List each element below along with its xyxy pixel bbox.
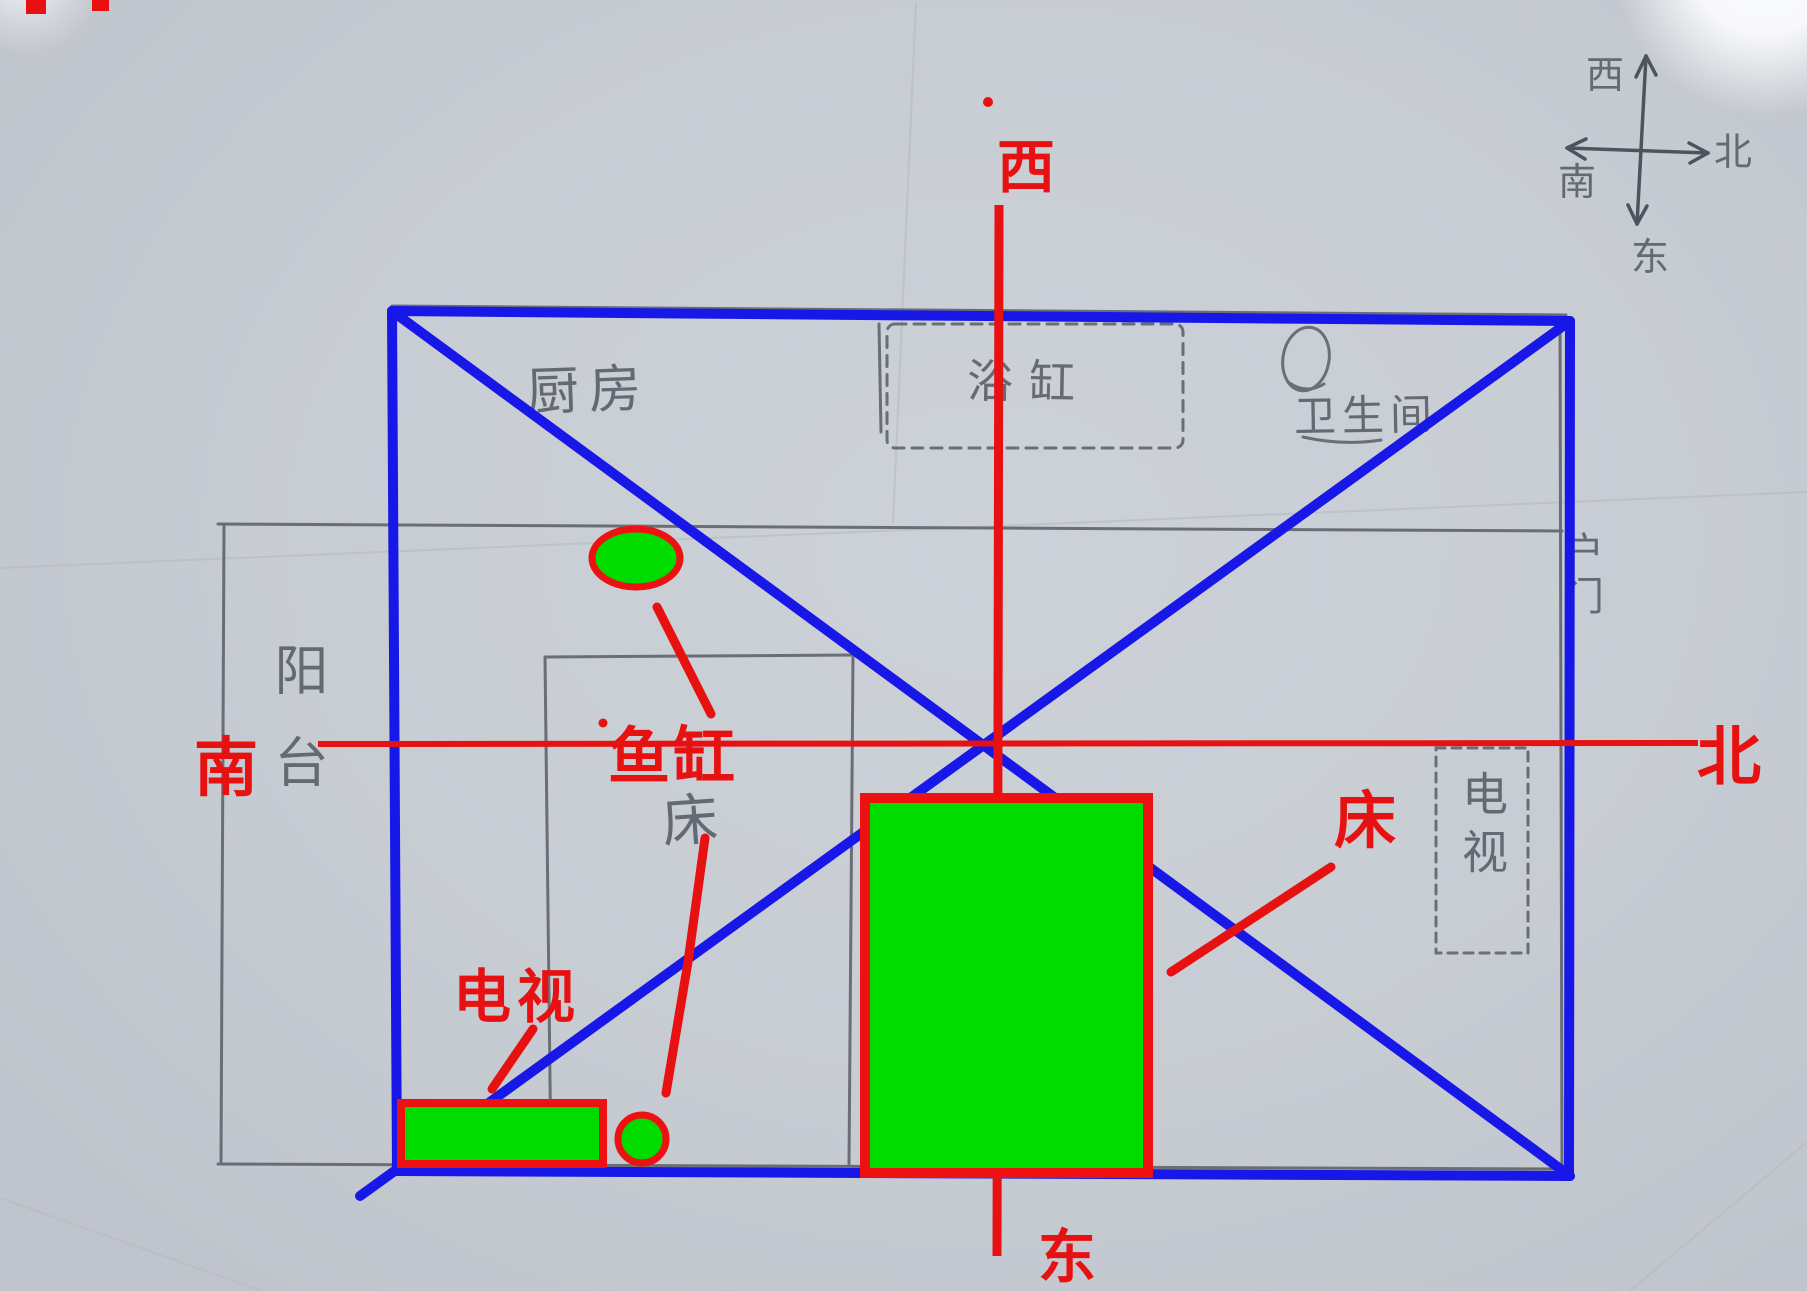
bed-red-label: 床 — [1334, 791, 1396, 853]
compass-arrow-up — [1636, 56, 1656, 77]
blue-bottom-edge — [397, 1171, 1570, 1176]
pencil-bottom-wall — [218, 1164, 1565, 1169]
green-furniture — [401, 529, 1148, 1173]
axis-east-label: 东 — [1038, 1229, 1096, 1287]
red-dot-top — [983, 97, 993, 107]
blue-top-edge — [392, 311, 1570, 321]
pencil-bedroom-top — [545, 655, 853, 657]
crease-line — [0, 492, 1807, 568]
blue-left-edge — [392, 311, 397, 1171]
fish-tank-pointer — [657, 607, 711, 714]
tv-pointer — [492, 1029, 533, 1089]
tv-shape — [401, 1103, 603, 1164]
entrance-door-label: 户门 — [1560, 531, 1600, 619]
compass-arrow-down — [1628, 205, 1647, 224]
small-tank-shape — [618, 1115, 666, 1163]
tv-red-label: 电视 — [453, 969, 581, 1027]
toilet-icon — [1278, 323, 1334, 394]
balcony-label: 阳台 — [269, 642, 323, 826]
blue-diagonal-tlbr — [392, 311, 1570, 1176]
fish-tank-shape — [592, 529, 680, 587]
compass-arrow-left — [1567, 139, 1586, 159]
compass-west-label: 西 — [1586, 56, 1624, 94]
compass-south-label: 南 — [1558, 163, 1596, 201]
red-pointer-lines — [492, 607, 1331, 1093]
red-dot-mid — [599, 719, 608, 728]
compass-north-label: 北 — [1714, 133, 1752, 171]
pencil-bedroom-right — [849, 655, 853, 1164]
pencil-top-wall — [392, 306, 1566, 315]
axis-south-label: 南 — [194, 737, 258, 801]
tv-pencil-label: 电视 — [1459, 770, 1505, 886]
axis-west-label: 西 — [997, 139, 1055, 197]
bathroom-label: 卫生间 — [1294, 394, 1439, 439]
bed-pencil-label: 床 — [660, 792, 720, 852]
crease-line — [893, 2, 916, 523]
compass-east-label: 东 — [1631, 238, 1669, 276]
floor-plan-photo: 厨房 浴缸 卫生间 阳台 床 电视 户门 西 南 北 东 — [0, 0, 1807, 1291]
small-tank-pointer — [666, 838, 705, 1093]
pencil-right-wall — [1560, 318, 1562, 1166]
crease-line — [1630, 1142, 1807, 1291]
toilet-base-stroke — [1288, 382, 1324, 389]
bed-shape — [865, 798, 1148, 1173]
kitchen-label: 厨房 — [526, 363, 652, 419]
pencil-mid-wall — [218, 524, 1562, 531]
bathtub-label: 浴缸 — [967, 358, 1092, 406]
blue-diagonal-trbl — [360, 321, 1570, 1196]
red-marks — [26, 0, 993, 728]
pencil-bedroom-left — [545, 657, 551, 1164]
pencil-balcony-wall — [221, 526, 224, 1164]
compass-arrow-right — [1689, 143, 1708, 163]
corner-mark — [26, 0, 46, 14]
axis-north-label: 北 — [1697, 726, 1761, 790]
corner-mark — [92, 0, 109, 11]
crease-line — [0, 1198, 262, 1291]
blue-room-outline — [360, 311, 1570, 1196]
compass-horizontal-axis — [1567, 148, 1708, 153]
bed-pointer — [1171, 867, 1331, 972]
pencil-kitchen-partition — [879, 324, 881, 432]
fish-tank-label: 鱼缸 — [608, 727, 738, 789]
red-axis-horizontal — [318, 743, 1698, 744]
compass-vertical-axis — [1637, 56, 1646, 224]
blue-right-edge — [1569, 321, 1570, 1176]
